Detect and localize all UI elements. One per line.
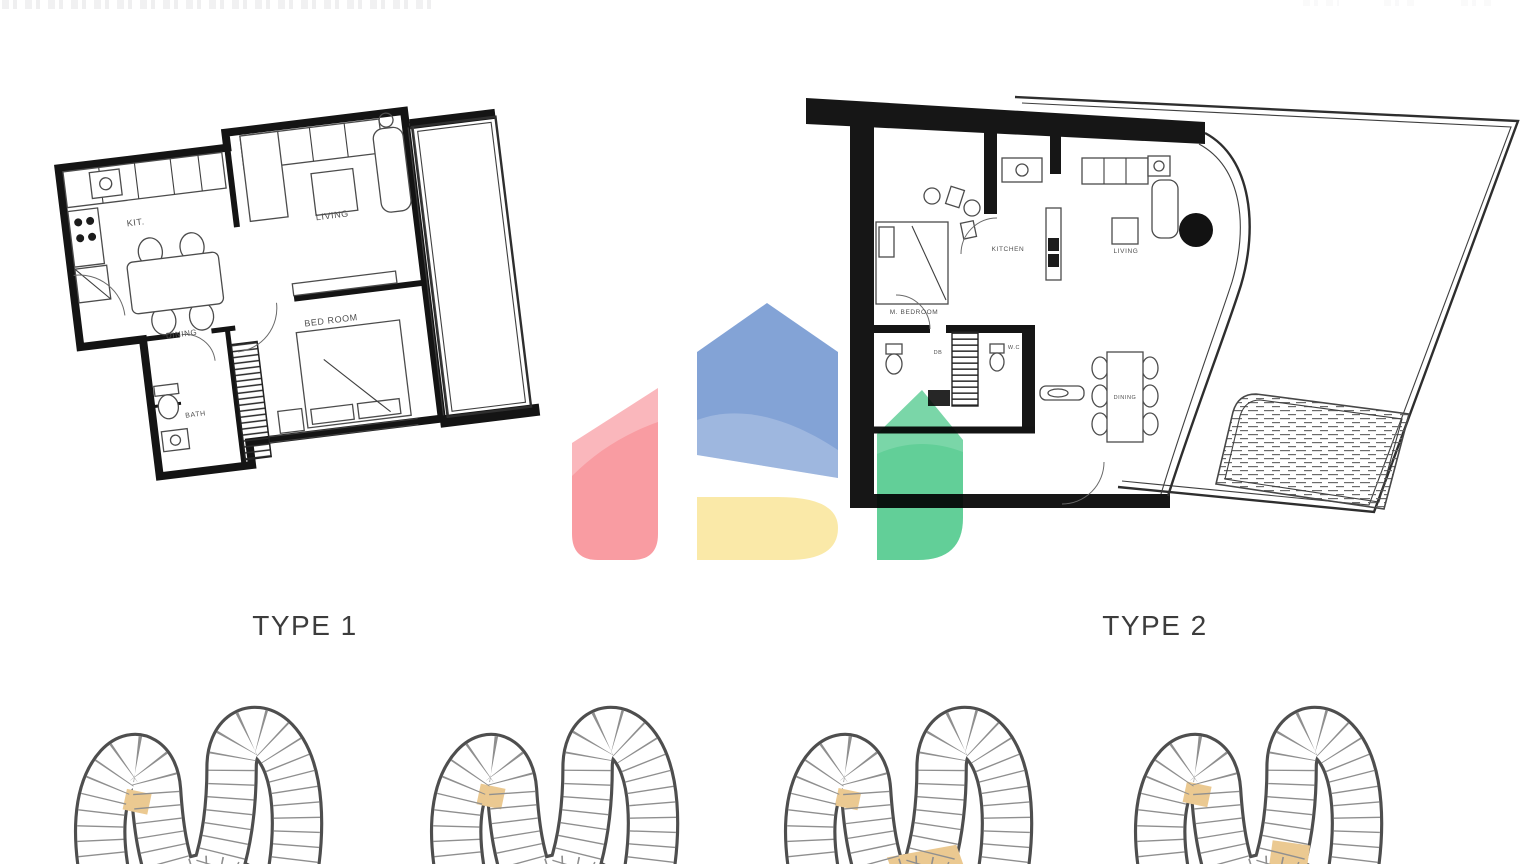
wall-bed-kitchen bbox=[984, 132, 997, 214]
type2-left-wall bbox=[850, 122, 874, 508]
type1-living-furniture bbox=[239, 111, 421, 299]
type1-dining-furniture bbox=[124, 230, 227, 338]
key-plans-row bbox=[100, 732, 1357, 864]
key-plan-1 bbox=[100, 732, 297, 864]
logo-yellow-shape bbox=[697, 497, 838, 560]
type2-label-kitchen: KITCHEN bbox=[992, 246, 1025, 253]
type2-label-mbedroom: M. BEDROOM bbox=[890, 309, 939, 316]
type1-label-bath: BATH bbox=[185, 410, 206, 419]
floorplan-page: KIT. DINING LIVING BED ROOM BATH bbox=[0, 0, 1536, 864]
column-circle bbox=[1179, 213, 1213, 247]
wall-kitchen-living bbox=[227, 148, 237, 227]
type2-label-wc: W.C bbox=[1008, 345, 1020, 351]
wall-kitchen-living bbox=[1050, 136, 1061, 174]
type2-wardrobe bbox=[952, 332, 978, 406]
type2-label-living: LIVING bbox=[1114, 248, 1139, 255]
type1-floorplan: KIT. DINING LIVING BED ROOM BATH bbox=[57, 99, 542, 484]
type2-deck bbox=[1216, 394, 1409, 509]
key-plan-4 bbox=[1160, 732, 1357, 864]
type2-bedroom-furniture bbox=[876, 186, 980, 304]
type2-label-dining: DINING bbox=[1114, 395, 1137, 401]
type2-bath-fixtures bbox=[886, 332, 1084, 406]
floorplan-canvas: KIT. DINING LIVING BED ROOM BATH bbox=[0, 0, 1536, 864]
wall-foyer bbox=[1022, 329, 1035, 433]
type2-label-db: DB bbox=[934, 350, 943, 356]
watermark-logo bbox=[572, 303, 963, 560]
key-plan-3 bbox=[810, 732, 1007, 864]
type1-title: TYPE 1 bbox=[195, 610, 415, 642]
type2-title: TYPE 2 bbox=[1045, 610, 1265, 642]
type2-living-furniture bbox=[1082, 156, 1178, 244]
type2-kitchen-furniture bbox=[1002, 158, 1061, 280]
type1-label-kitchen: KIT. bbox=[126, 216, 145, 228]
key-plan-2 bbox=[456, 732, 653, 864]
